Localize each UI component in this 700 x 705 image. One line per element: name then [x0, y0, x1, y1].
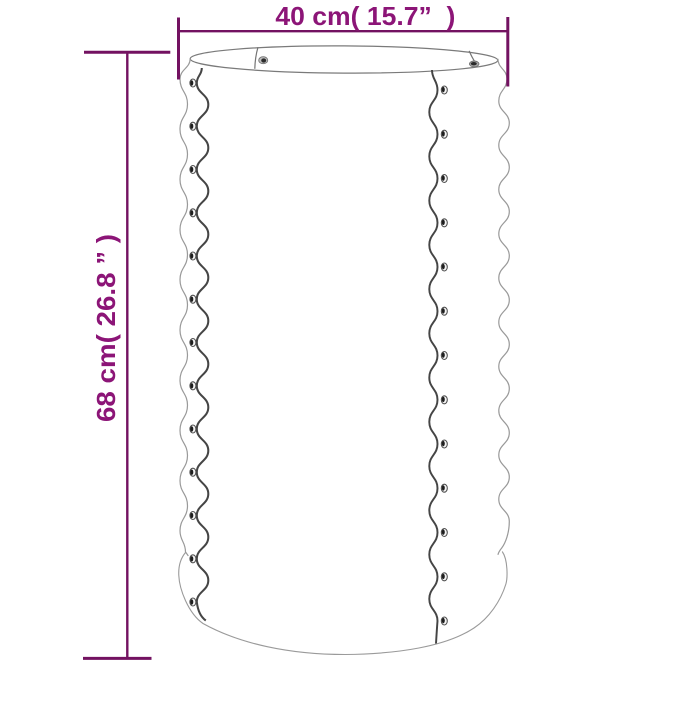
svg-text:68 cm( 26.8 ” ): 68 cm( 26.8 ” ) [91, 234, 121, 422]
svg-text:40 cm( 15.7” ): 40 cm( 15.7” ) [275, 1, 455, 31]
